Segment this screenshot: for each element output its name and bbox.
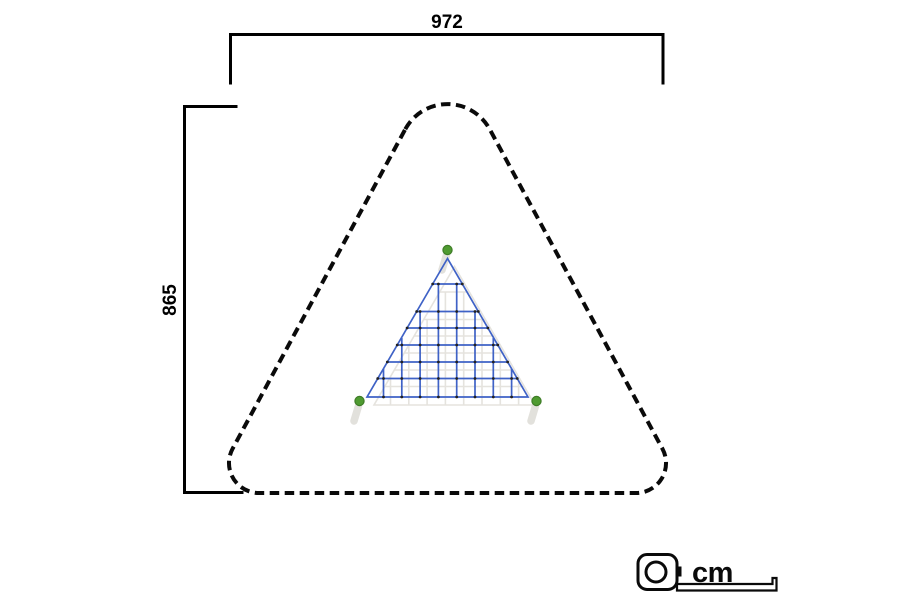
anchor-post — [532, 396, 541, 405]
net-knot — [510, 377, 513, 380]
net-knot — [437, 283, 440, 286]
net-knot — [506, 361, 509, 364]
net-knot — [400, 344, 403, 347]
net-knot — [386, 361, 389, 364]
net-knot — [455, 377, 458, 380]
net-knot — [455, 344, 458, 347]
top-dimension-bracket — [231, 35, 664, 84]
anchor-post — [443, 245, 452, 254]
net-knot — [492, 396, 495, 399]
net-shadow — [354, 255, 536, 421]
net-knot — [415, 310, 418, 313]
net-knot — [406, 327, 409, 330]
net-knot — [455, 310, 458, 313]
net-knot — [419, 377, 422, 380]
net-knot — [400, 377, 403, 380]
net-knot — [376, 377, 379, 380]
net-knot — [474, 361, 477, 364]
net-knot — [431, 283, 434, 286]
tape-reel — [646, 562, 666, 582]
net-knot — [419, 310, 422, 313]
net-knot — [419, 327, 422, 330]
net-knot — [492, 361, 495, 364]
net-knot — [474, 327, 477, 330]
net-knot — [474, 396, 477, 399]
net-knot — [496, 344, 499, 347]
net-knot — [486, 327, 489, 330]
net-knot — [382, 396, 385, 399]
net-knot — [492, 377, 495, 380]
net-knot — [437, 361, 440, 364]
net-knot — [455, 361, 458, 364]
net-knot — [477, 310, 480, 313]
net-knot — [419, 344, 422, 347]
net-knot — [437, 344, 440, 347]
net-knot — [437, 377, 440, 380]
net-knot — [461, 283, 464, 286]
net-knot — [455, 327, 458, 330]
anchor-post — [355, 396, 364, 405]
safety-zone-outline — [229, 104, 666, 493]
net-knot — [437, 310, 440, 313]
net-knot — [474, 377, 477, 380]
post-shadow — [354, 406, 359, 421]
net-knot — [455, 396, 458, 399]
height-dimension-label: 865 — [160, 284, 181, 316]
left-dimension-bracket — [185, 107, 243, 493]
net-knot — [455, 283, 458, 286]
net-knot — [396, 344, 399, 347]
net-knot — [492, 344, 495, 347]
net-knot — [400, 396, 403, 399]
top-dimension: 972 — [231, 12, 664, 83]
net-knot — [510, 396, 513, 399]
net-knot — [516, 377, 519, 380]
left-dimension: 865 — [160, 107, 242, 493]
plan-view-diagram: 972 865 cm — [0, 0, 900, 600]
net-knot — [474, 344, 477, 347]
net-knot — [474, 310, 477, 313]
unit-label: cm — [692, 557, 733, 589]
width-dimension-label: 972 — [431, 12, 463, 33]
unit-legend: cm — [638, 555, 777, 591]
net-knot — [400, 361, 403, 364]
tape-exit-nub — [676, 567, 682, 577]
net-knot — [419, 396, 422, 399]
post-shadow — [531, 406, 536, 421]
net-knot — [437, 396, 440, 399]
net-knot — [437, 327, 440, 330]
net-knot — [382, 377, 385, 380]
net-knot — [419, 361, 422, 364]
